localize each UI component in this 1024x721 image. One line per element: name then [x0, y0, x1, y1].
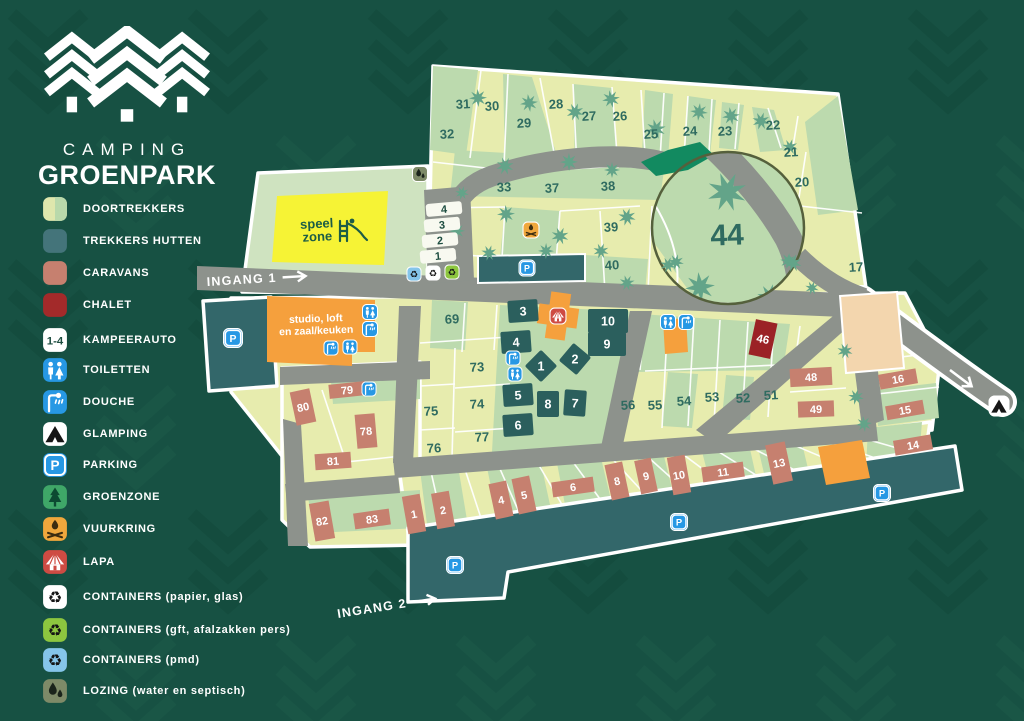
svg-text:2: 2: [437, 235, 444, 247]
legend-item-groenzone: GROENZONE: [42, 484, 160, 510]
logo-trees-icon: [38, 26, 216, 130]
legend-item-label: CHALET: [83, 299, 132, 311]
plot-label-21: 21: [783, 144, 798, 160]
legend-item-glamping: GLAMPING: [42, 421, 148, 447]
lapa-icon: [42, 549, 68, 575]
caravan-plot-81: 81: [314, 452, 351, 470]
legend-item-label: CARAVANS: [83, 267, 149, 279]
groenzone-icon: [42, 484, 68, 510]
recycle-pmd-icon: ♻: [42, 647, 68, 673]
svg-text:♻: ♻: [48, 621, 63, 640]
recycle-gft-icon: ♻: [445, 265, 459, 279]
legend-item-kampeerauto: 1-4KAMPEERAUTO: [42, 327, 177, 353]
plot-label-33: 33: [496, 179, 511, 195]
plot-label-75: 75: [423, 403, 438, 419]
legend-item-label: GLAMPING: [83, 428, 148, 440]
douche-icon: [362, 382, 376, 396]
svg-text:♻: ♻: [410, 270, 418, 281]
logo-groenpark-text: GROENPARK: [38, 160, 216, 191]
douche-icon: [42, 389, 68, 415]
plot-label-26: 26: [612, 108, 627, 124]
plot-label-53: 53: [704, 389, 719, 405]
legend-item-containers-papier-glas: ♻CONTAINERS (papier, glas): [42, 584, 243, 610]
svg-text:♻: ♻: [448, 268, 456, 279]
legend-item-label: TOILETTEN: [83, 364, 150, 376]
swatch-split-icon: [42, 196, 68, 222]
caravan-plot-48: 48: [790, 367, 833, 387]
plot-label-69: 69: [444, 311, 459, 327]
legend-item-label: CONTAINERS (gft, afalzakken pers): [83, 624, 290, 636]
plot-label-30: 30: [484, 98, 499, 114]
douche-icon: [362, 321, 377, 336]
toiletten-icon: [42, 357, 68, 383]
legend-item-containers-pmd: ♻CONTAINERS (pmd): [42, 647, 200, 673]
legend-item-caravans: CARAVANS: [42, 260, 149, 286]
glamping-icon: [989, 396, 1009, 416]
douche-icon: [506, 351, 520, 365]
svg-text:81: 81: [327, 456, 340, 469]
plot-label-24: 24: [682, 123, 698, 139]
lapa-icon: [550, 308, 566, 324]
legend-item-label: KAMPEERAUTO: [83, 334, 177, 346]
plot-label-29: 29: [516, 115, 531, 131]
legend-item-label: DOORTREKKERS: [83, 203, 185, 215]
plot-label-51: 51: [763, 387, 778, 403]
svg-text:79: 79: [340, 384, 353, 397]
plot-label-23: 23: [717, 123, 732, 139]
trekkershut-9: 9: [588, 332, 626, 356]
box-1-4-icon: 1-4: [42, 327, 68, 353]
plot-label-77: 77: [474, 429, 489, 445]
trekkershut-4: 4: [500, 330, 531, 354]
douche-icon: [324, 341, 338, 355]
lozing-icon: [42, 678, 68, 704]
svg-text:16: 16: [891, 373, 905, 387]
svg-text:78: 78: [359, 425, 372, 438]
recycle-papier-icon: ♻: [426, 266, 440, 280]
trekkershut-5: 5: [502, 383, 533, 407]
legend-item-label: DOUCHE: [83, 396, 135, 408]
svg-text:9: 9: [604, 338, 611, 352]
svg-text:11: 11: [717, 466, 730, 480]
toiletten-icon: [362, 304, 377, 319]
trekkershut-label-1: 1: [538, 360, 545, 374]
svg-text:10: 10: [601, 315, 615, 329]
svg-text:P: P: [879, 489, 885, 499]
parking-icon: P: [42, 452, 68, 478]
legend-item-label: LOZING (water en septisch): [83, 685, 245, 697]
camping-groenpark-map-poster: speel zone studio, loft en zaal/keuken 3…: [0, 0, 1024, 721]
speelzone-label-line2: zone: [302, 228, 332, 245]
svg-text:P: P: [452, 561, 458, 571]
plot-label-37: 37: [544, 180, 559, 196]
plot-label-55: 55: [647, 397, 662, 413]
trekkershut-label-2: 2: [572, 353, 579, 367]
legend-item-label: CONTAINERS (papier, glas): [83, 591, 243, 603]
legend-item-containers-gft: ♻CONTAINERS (gft, afalzakken pers): [42, 617, 290, 643]
legend-item-label: GROENZONE: [83, 491, 160, 503]
legend-item-vuurkring: VUURKRING: [42, 516, 156, 542]
plot-label-76: 76: [426, 440, 441, 456]
svg-text:48: 48: [805, 372, 818, 385]
svg-text:3: 3: [519, 304, 527, 318]
parking-icon: P: [519, 260, 535, 276]
legend-item-lapa: LAPA: [42, 549, 115, 575]
toiletten-icon: [508, 367, 522, 381]
legend-item-label: TREKKERS HUTTEN: [83, 235, 202, 247]
plot-label-17: 17: [848, 259, 863, 275]
plot-label-40: 40: [604, 257, 619, 273]
caravan-plot-78: 78: [355, 413, 378, 449]
toiletten-icon: [660, 314, 675, 329]
plot-label-38: 38: [600, 178, 615, 194]
svg-text:49: 49: [810, 404, 823, 416]
plot-label-39: 39: [603, 219, 618, 235]
svg-text:8: 8: [545, 398, 552, 412]
parking-icon: P: [447, 557, 464, 574]
plot-label-54: 54: [676, 393, 692, 409]
plot-label-22: 22: [765, 117, 780, 133]
svg-text:3: 3: [439, 219, 446, 231]
legend-item-label: CONTAINERS (pmd): [83, 654, 200, 666]
plot-label-74: 74: [469, 396, 485, 412]
parking-icon: P: [224, 329, 243, 348]
svg-text:♻: ♻: [48, 588, 63, 607]
recycle-papier-icon: ♻: [42, 584, 68, 610]
legend-item-label: PARKING: [83, 459, 138, 471]
legend-item-doortrekkers: DOORTREKKERS: [42, 196, 185, 222]
parking-icon: P: [874, 485, 891, 502]
svg-text:13: 13: [772, 457, 786, 471]
svg-text:INGANG 2: INGANG 2: [336, 596, 407, 621]
svg-text:1: 1: [435, 251, 442, 263]
service-building: [818, 440, 870, 485]
svg-text:P: P: [230, 334, 237, 345]
plot-label-27: 27: [581, 108, 596, 124]
caravan-plot-49: 49: [798, 400, 835, 417]
glamping-icon: [42, 421, 68, 447]
svg-text:6: 6: [514, 418, 522, 432]
svg-text:P: P: [50, 458, 59, 473]
plot-label-31: 31: [455, 96, 470, 112]
svg-text:10: 10: [672, 469, 686, 483]
legend-item-parking: PPARKING: [42, 452, 138, 478]
svg-text:P: P: [524, 263, 530, 273]
recycle-gft-icon: ♻: [42, 617, 68, 643]
swatch-icon: [42, 260, 68, 286]
legend-item-label: LAPA: [83, 556, 115, 568]
plot-label-32: 32: [439, 126, 454, 142]
legend-item-toiletten: TOILETTEN: [42, 357, 150, 383]
plot-label-56: 56: [620, 397, 635, 413]
svg-text:82: 82: [315, 515, 329, 529]
trekkershut-6: 6: [502, 413, 533, 437]
swatch-icon: [42, 228, 68, 254]
trekkershut-3: 3: [507, 299, 538, 323]
legend-item-label: VUURKRING: [83, 523, 156, 535]
plot-label-20: 20: [794, 174, 809, 190]
svg-text:P: P: [676, 518, 682, 528]
toiletten-icon: [343, 340, 357, 354]
svg-text:♻: ♻: [429, 269, 437, 280]
svg-text:5: 5: [514, 388, 522, 402]
trekkershut-7: 7: [563, 389, 587, 416]
svg-text:1-4: 1-4: [47, 336, 64, 348]
trekkershut-10: 10: [588, 309, 628, 333]
legend-item-trekkers-hutten: TREKKERS HUTTEN: [42, 228, 202, 254]
logo-camping-text: CAMPING: [38, 140, 216, 160]
plot-label-44: 44: [710, 218, 745, 252]
vuurkring-icon: [42, 516, 68, 542]
plot-label-28: 28: [548, 96, 563, 112]
plot-label-52: 52: [735, 390, 750, 406]
lozing-icon: [412, 166, 427, 181]
vuurkring-icon: [523, 222, 539, 238]
svg-text:15: 15: [898, 404, 912, 418]
barn-building: [840, 292, 904, 373]
douche-icon: [678, 314, 693, 329]
svg-text:♻: ♻: [48, 651, 63, 670]
recycle-pmd-icon: ♻: [407, 267, 421, 281]
legend-item-chalet: CHALET: [42, 292, 132, 318]
legend-item-douche: DOUCHE: [42, 389, 135, 415]
plot-label-25: 25: [643, 126, 658, 142]
logo: CAMPING GROENPARK: [38, 26, 216, 191]
plot-label-73: 73: [469, 359, 484, 375]
legend-item-lozing: LOZING (water en septisch): [42, 678, 245, 704]
svg-text:80: 80: [296, 401, 310, 415]
svg-text:83: 83: [365, 513, 379, 527]
trekkershut-8: 8: [537, 391, 559, 417]
svg-text:7: 7: [571, 396, 579, 410]
swatch-icon: [42, 292, 68, 318]
svg-text:4: 4: [512, 335, 520, 349]
parking-icon: P: [671, 514, 688, 531]
